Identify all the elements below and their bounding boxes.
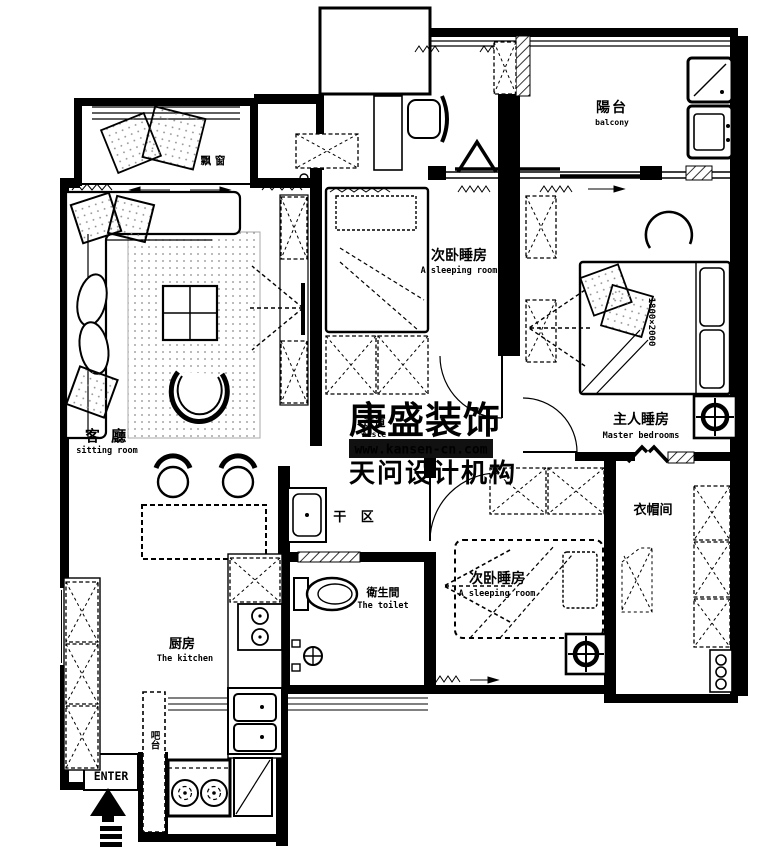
- desk: [374, 96, 402, 170]
- nightstand: [526, 300, 556, 362]
- cabinet: [66, 706, 98, 768]
- floor-drain: [292, 640, 322, 671]
- label-aisle-zh: 过道: [363, 415, 386, 429]
- label-dry-area: 干 区: [333, 510, 379, 525]
- bed-size-label: 1800×2000: [646, 298, 656, 347]
- floor-plan-drawing: 1800×2000: [0, 0, 780, 861]
- master-bed: 1800×2000: [580, 262, 730, 394]
- hob: [238, 604, 282, 650]
- lounge-chair: [171, 372, 227, 422]
- nightstand: [526, 196, 556, 258]
- label-master-zh: 主人睡房: [613, 411, 669, 428]
- cabinet: [230, 558, 280, 602]
- wardrobe: [378, 336, 428, 394]
- dry-area: [288, 488, 326, 542]
- corner-chair: [646, 212, 692, 248]
- label-living-zh: 客 廳: [84, 427, 129, 445]
- tv-cabinet: [280, 195, 308, 405]
- label-balcony-zh: 陽台: [596, 99, 628, 116]
- laundry-sink: [688, 106, 732, 158]
- master-bedroom: 1800×2000: [526, 196, 736, 438]
- cabinet: [66, 644, 98, 704]
- label-toilet-en: The toilet: [357, 600, 408, 611]
- label-bedroom-b-zh: 次卧睡房: [469, 570, 525, 587]
- label-kitchen-en: The kitchen: [157, 653, 213, 664]
- watermark: 康盛装饰 www.kansen-cn.com 天问设计机构: [349, 399, 517, 489]
- label-enter: ENTER: [94, 769, 129, 783]
- label-living-en: sitting room: [76, 445, 137, 456]
- bar-counter: [143, 692, 165, 832]
- label-bedroom-b-en: A sleeping room: [459, 588, 536, 599]
- hall-table: [296, 134, 358, 168]
- label-master-en: Master bedrooms: [603, 431, 680, 441]
- bay-window: [101, 106, 205, 172]
- balcony: [688, 58, 732, 158]
- dining-table: [142, 505, 266, 559]
- label-toilet-zh: 衛生間: [366, 585, 400, 599]
- kitchen-sink: [228, 688, 282, 754]
- fridge: [234, 758, 272, 816]
- column-symbol: [566, 634, 606, 674]
- label-kitchen-zh: 厨房: [169, 636, 195, 652]
- wardrobe: [694, 486, 730, 540]
- label-cloakroom: 衣帽间: [633, 502, 672, 518]
- wardrobe: [694, 542, 730, 597]
- stool: [221, 456, 255, 497]
- wardrobe: [548, 468, 604, 514]
- toilet-room: [292, 578, 357, 671]
- label-bedroom-a-zh: 次卧睡房: [431, 247, 487, 264]
- desk-chair: [408, 96, 447, 142]
- label-bar: 吧台: [149, 731, 161, 751]
- coffee-table: [163, 286, 217, 340]
- corner-wardrobe: [622, 548, 652, 612]
- floor-plan-page: 1800×2000: [0, 0, 780, 861]
- wardrobe: [494, 42, 516, 94]
- entry-arrow: [90, 788, 126, 847]
- shoe-rack: [710, 650, 732, 692]
- washer: [688, 58, 732, 102]
- bed-a: [326, 188, 428, 332]
- stool: [156, 456, 190, 497]
- column-symbol: [694, 396, 736, 438]
- wardrobe: [326, 336, 376, 394]
- label-bedroom-a-en: A sleeping room: [421, 265, 498, 276]
- label-balcony-en: balcony: [595, 118, 629, 127]
- watermark-url: www.kansen-cn.com: [354, 443, 487, 458]
- label-bay-window: 飘 窗: [201, 154, 226, 167]
- washbasin: [288, 488, 326, 542]
- stove: [168, 760, 230, 816]
- cabinet: [66, 582, 98, 642]
- label-aisle-en: Aisle: [362, 429, 386, 439]
- toilet: [294, 578, 357, 610]
- wardrobe: [694, 599, 730, 647]
- watermark-org: 天问设计机构: [349, 459, 517, 489]
